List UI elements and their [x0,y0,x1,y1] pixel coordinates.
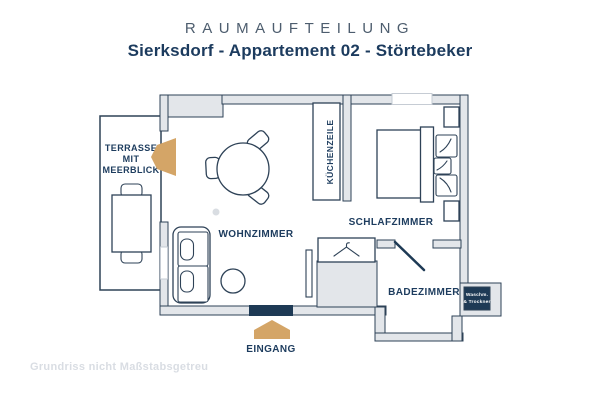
terrace-label-line3: MEERBLICK [102,165,159,175]
terrace-table [112,195,151,252]
entrance: EINGANG [246,305,295,355]
terrace: TERRASSE MIT MEERBLICK [100,116,161,290]
kitchenette-unit: KÜCHENZEILE [313,103,340,200]
side-table [221,269,245,293]
wardrobe [318,238,375,262]
living-room-label: WOHNZIMMER [218,229,293,240]
double-bed [377,107,459,221]
wall-segment [452,316,462,341]
bedroom-label: SCHLAFZIMMER [349,217,434,228]
wall-segment [433,240,461,248]
bathroom-label: BADEZIMMER [388,287,460,298]
entrance-label: EINGANG [246,344,295,355]
washer-label-line2: & Trockner [463,299,490,305]
ceiling-dot [213,209,220,216]
bed-headboard [421,127,434,202]
entrance-door [249,305,293,316]
bathroom-door-swing [395,242,424,270]
terrace-label-line1: TERRASSE [105,143,157,153]
nightstand [444,107,459,127]
sofa-cushion [181,271,194,292]
wall-segment [160,95,168,131]
wall-segment [317,261,377,307]
washer-dryer-box: Waschm. & Trockner [463,287,490,310]
bed-pillow [436,175,457,196]
entrance-arrow-icon [254,320,290,339]
nightstand [444,201,459,221]
floor-plan: TERRASSE MIT MEERBLICK [0,0,600,400]
bed-duvet [377,130,421,198]
window-left [161,247,168,279]
wall-segment [343,95,351,201]
wall-segment [375,333,463,341]
dining-set [205,129,270,206]
kitchenette-label: KÜCHENZEILE [325,120,335,185]
sofa [173,227,210,303]
washer-dryer-rect [464,287,490,310]
sofa-cushion [181,239,194,260]
wall-segment [377,240,395,248]
disclaimer-note: Grundriss nicht Maßstabsgetreu [30,361,208,373]
wall-segment [160,95,223,117]
washer-label-line1: Waschm. [466,292,488,298]
wall-segment [460,95,468,283]
dining-table [217,143,269,195]
terrace-label-line2: MIT [123,154,140,164]
wardrobe-box [318,238,375,262]
window-top [392,94,432,105]
tv-sideboard [306,250,312,297]
